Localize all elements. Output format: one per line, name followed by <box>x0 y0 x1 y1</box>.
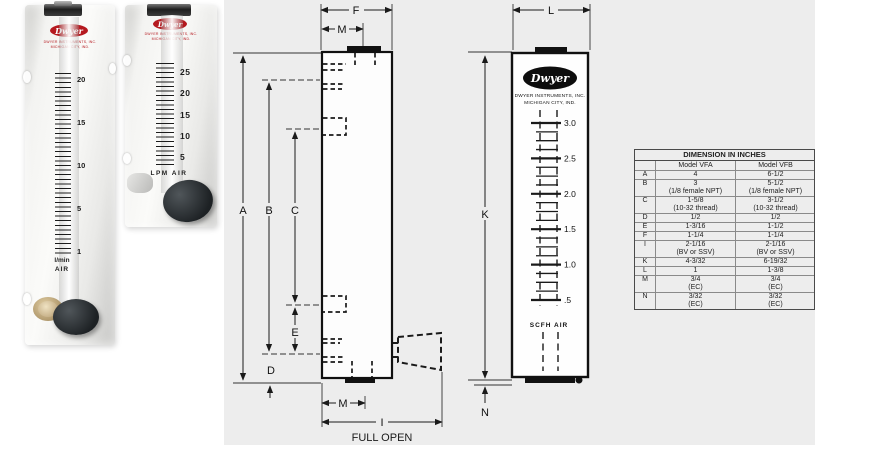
scale-number: 5 <box>77 204 81 213</box>
catalog-page: Dwyer DWYER INSTRUMENTS, INC. MICHIGAN C… <box>0 0 890 451</box>
vfb-value-cell: 2-1/16(BV or SSV) <box>736 241 815 257</box>
dim-letter-cell: C <box>635 197 656 213</box>
table-row: D 1/2 1/2 <box>635 213 814 222</box>
front-scale-number: 1.0 <box>564 260 576 270</box>
table-row: E 1-3/16 1-1/2 <box>635 222 814 231</box>
dimension-table: DIMENSION IN INCHES Model VFA Model VFB … <box>634 149 815 310</box>
dim-label-c: C <box>291 205 299 217</box>
table-title: DIMENSION IN INCHES <box>635 150 814 161</box>
table-row: F 1-1/4 1-1/4 <box>635 231 814 240</box>
front-scale-number: 2.0 <box>564 189 576 199</box>
scale-ticks <box>156 63 174 166</box>
vfb-value-cell: 3-1/2(10-32 thread) <box>736 197 815 213</box>
table-row: A 4 6-1/2 <box>635 170 814 179</box>
header-blank <box>635 161 656 170</box>
scale-number: 20 <box>180 88 190 98</box>
front-scale-number: 3.0 <box>564 118 576 128</box>
dim-label-k: K <box>481 209 489 221</box>
unit-label: l/min <box>25 257 99 264</box>
vfa-value-cell: 3/4(EC) <box>656 276 736 292</box>
side-view-drawing: A B C E D F M <box>224 0 470 451</box>
bottom-knob-dot <box>576 377 583 384</box>
dim-label-b: B <box>265 205 272 217</box>
vfa-value-cell: 3/32(EC) <box>656 293 736 309</box>
meter-body-outline <box>322 52 392 378</box>
dim-letter-cell: E <box>635 223 656 231</box>
dim-label-e: E <box>291 327 298 339</box>
dim-label-f: F <box>353 5 360 17</box>
vfa-value-cell: 3(1/8 female NPT) <box>656 180 736 196</box>
dim-letter-cell: F <box>635 232 656 240</box>
mfr-text: MICHIGAN CITY, IND. <box>524 100 576 106</box>
vfb-value-cell: 1-1/4 <box>736 232 815 240</box>
flowmeter-photo-vfb: Dwyer DWYER INSTRUMENTS, INC. MICHIGAN C… <box>25 5 115 345</box>
top-plug <box>54 1 72 6</box>
mounting-hole <box>23 293 31 305</box>
front-scale-number: 1.5 <box>564 224 576 234</box>
dim-label-l: L <box>548 5 554 17</box>
table-row: L 1 1-3/8 <box>635 266 814 275</box>
flowmeter-photo-vfa: Dwyer DWYER INSTRUMENTS, INC. MICHIGAN C… <box>125 5 217 227</box>
vfa-value-cell: 1/2 <box>656 214 736 222</box>
front-scale-number: 2.5 <box>564 153 576 163</box>
valve-body <box>127 173 153 193</box>
front-view-drawing: L K N Dwyer DWYER INSTRUMENTS, INC. MICH… <box>460 0 650 451</box>
top-cap <box>535 47 567 53</box>
dim-label-m-bottom: M <box>338 398 347 410</box>
vfa-value-cell: 4 <box>656 171 736 179</box>
table-row: K 4-3/32 6-19/32 <box>635 257 814 266</box>
scale-number: 25 <box>180 67 190 77</box>
dim-label-d: D <box>267 365 275 377</box>
vfb-value-cell: 6-19/32 <box>736 258 815 266</box>
scale-number: 20 <box>77 75 85 84</box>
knob-full-open-outline <box>393 333 441 370</box>
mounting-hole <box>123 153 131 164</box>
vfa-value-cell: 1-1/4 <box>656 232 736 240</box>
scale-numbers: 20151051 <box>77 5 97 345</box>
dim-label-a: A <box>239 205 247 217</box>
dim-label-n: N <box>481 407 489 419</box>
mounting-hole <box>123 55 131 66</box>
scale-number: 15 <box>180 110 190 120</box>
dim-letter-cell: M <box>635 276 656 292</box>
dim-letter-cell: N <box>635 293 656 309</box>
top-cap <box>347 46 381 52</box>
table-row: M 3/4(EC) 3/4(EC) <box>635 275 814 292</box>
mfr-text: DWYER INSTRUMENTS, INC. <box>515 93 586 99</box>
vfb-value-cell: 1/2 <box>736 214 815 222</box>
scale-ticks <box>55 73 71 257</box>
dim-letter-cell: L <box>635 267 656 275</box>
vfb-value-cell: 6-1/2 <box>736 171 815 179</box>
valve-knob <box>53 299 99 335</box>
unit-label: AIR <box>25 266 99 273</box>
scale-number: 10 <box>180 131 190 141</box>
scale-number: 10 <box>77 161 85 170</box>
table-row: C 1-5/8(10-32 thread) 3-1/2(10-32 thread… <box>635 196 814 213</box>
table-row: B 3(1/8 female NPT) 5-1/2(1/8 female NPT… <box>635 179 814 196</box>
bottom-foot <box>525 377 575 383</box>
scale-number: 5 <box>180 152 185 162</box>
dim-letter-cell: K <box>635 258 656 266</box>
vfa-value-cell: 1-3/16 <box>656 223 736 231</box>
dim-letter-cell: D <box>635 214 656 222</box>
vfa-value-cell: 1-5/8(10-32 thread) <box>656 197 736 213</box>
full-open-label: FULL OPEN <box>352 432 413 444</box>
vfb-value-cell: 1-1/2 <box>736 223 815 231</box>
header-model-vfb: Model VFB <box>736 161 815 170</box>
dim-label-m-top: M <box>337 24 346 36</box>
front-scale-number: .5 <box>564 295 571 305</box>
vfa-value-cell: 4-3/32 <box>656 258 736 266</box>
dim-letter-cell: B <box>635 180 656 196</box>
vfb-value-cell: 5-1/2(1/8 female NPT) <box>736 180 815 196</box>
scale-number: 15 <box>77 118 85 127</box>
vfb-value-cell: 1-3/8 <box>736 267 815 275</box>
dwyer-logo-text: Dwyer <box>530 72 570 85</box>
vfa-value-cell: 1 <box>656 267 736 275</box>
scale-number: 1 <box>77 247 81 256</box>
table-header-row: Model VFA Model VFB <box>635 161 814 170</box>
dim-label-i: I <box>380 417 383 429</box>
header-model-vfa: Model VFA <box>656 161 736 170</box>
vfa-value-cell: 2-1/16(BV or SSV) <box>656 241 736 257</box>
mounting-hole <box>23 71 31 83</box>
unit-label: SCFH AIR <box>530 322 568 329</box>
bottom-cap <box>345 378 375 383</box>
mounting-hole <box>109 63 116 74</box>
dim-letter-cell: A <box>635 171 656 179</box>
table-row: N 3/32(EC) 3/32(EC) <box>635 292 814 309</box>
vfb-value-cell: 3/4(EC) <box>736 276 815 292</box>
table-row: I 2-1/16(BV or SSV) 2-1/16(BV or SSV) <box>635 240 814 257</box>
dim-letter-cell: I <box>635 241 656 257</box>
vfb-value-cell: 3/32(EC) <box>736 293 815 309</box>
